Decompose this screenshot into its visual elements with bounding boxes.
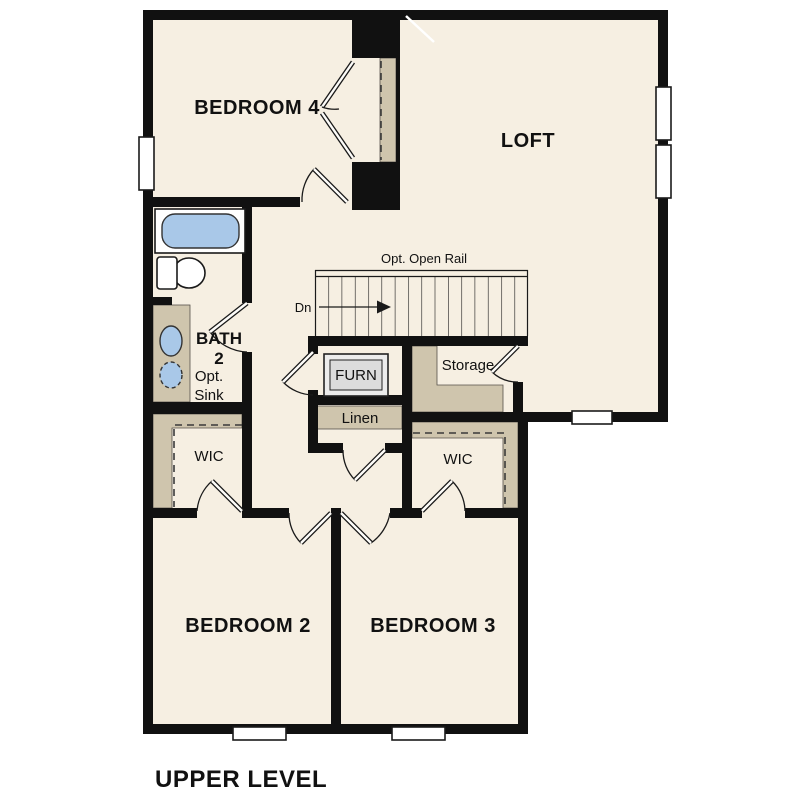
label-opt-sink-line2: Sink: [194, 387, 224, 404]
room-label-bath-line2: 2: [214, 349, 223, 368]
room-label-bath-line1: BATH: [196, 329, 242, 348]
wall-bedrooms-north-2: [242, 508, 289, 518]
wall-right-upper-exterior: [658, 10, 668, 422]
wall-closet-column-east: [396, 58, 400, 162]
window-bedroom2: [233, 727, 286, 740]
wall-bedrooms-north-3: [390, 508, 422, 518]
room-label-bedroom2: BEDROOM 2: [185, 615, 311, 637]
wall-loft-bottom: [402, 412, 668, 422]
label-opt-sink-line1: Opt.: [195, 368, 223, 385]
sink-icon: [160, 326, 182, 356]
toilet-tank-icon: [157, 257, 177, 289]
wall-storage-east: [513, 382, 523, 412]
wall-closet-column-bottom: [352, 162, 400, 210]
floor-plan-page: BEDROOM 4 LOFT BATH 2 Opt. Sink WIC WIC …: [0, 0, 810, 810]
room-label-loft: LOFT: [501, 130, 555, 152]
wall-bedroom-divider: [331, 508, 341, 734]
room-label-wic-left: WIC: [194, 448, 223, 465]
wall-left-exterior: [143, 10, 153, 734]
window-bedroom4-left: [139, 137, 154, 190]
wall-linen-south-left: [308, 443, 343, 453]
wall-bedroom4-south: [143, 197, 300, 207]
room-label-linen: Linen: [342, 410, 379, 427]
window-bedroom3: [392, 727, 445, 740]
stairs: [315, 270, 528, 336]
wall-toilet-stub: [143, 297, 172, 305]
wall-top-exterior: [143, 10, 668, 20]
room-label-furnace: FURN: [335, 367, 377, 384]
wall-bath-east-lower: [242, 352, 252, 402]
wall-wic-left-east: [242, 414, 252, 508]
room-label-bedroom3: BEDROOM 3: [370, 615, 496, 637]
bedroom4-closet-shelf: [380, 58, 396, 162]
room-label-wic-right: WIC: [443, 451, 472, 468]
bathtub-icon: [162, 214, 239, 248]
window-loft-right-1: [656, 87, 671, 140]
wall-bedrooms-north-4: [465, 508, 528, 518]
wall-central-vertical: [402, 336, 412, 518]
stairs-down-label: Dn: [295, 300, 312, 315]
wall-closet-column-top: [352, 10, 400, 58]
optional-sink-icon: [160, 362, 182, 388]
floor-plan-drawing: BEDROOM 4 LOFT BATH 2 Opt. Sink WIC WIC …: [0, 0, 810, 810]
wall-bedrooms-north-1: [143, 508, 197, 518]
wall-right-lower-exterior: [518, 412, 528, 734]
window-loft-right-2: [656, 145, 671, 198]
stairs-rail-note: Opt. Open Rail: [381, 251, 467, 266]
room-label-bedroom4: BEDROOM 4: [194, 97, 320, 119]
window-loft-bottom: [572, 411, 612, 424]
room-label-storage: Storage: [442, 357, 495, 374]
plan-title: UPPER LEVEL: [155, 766, 327, 793]
wall-stairs-bottom: [308, 336, 528, 346]
